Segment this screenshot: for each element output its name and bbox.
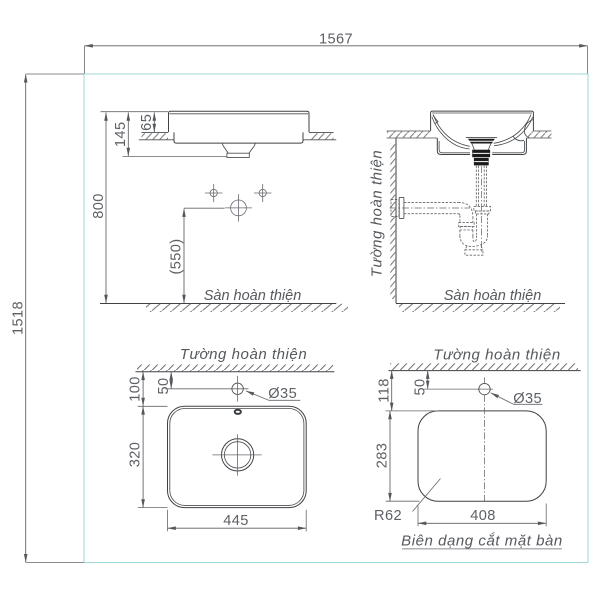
- svg-text:Ø35: Ø35: [268, 386, 297, 402]
- svg-text:408: 408: [470, 508, 496, 524]
- svg-text:118: 118: [376, 378, 392, 402]
- svg-text:100: 100: [128, 376, 144, 402]
- svg-text:Ø35: Ø35: [513, 391, 542, 407]
- svg-text:Tường hoàn thiện: Tường hoàn thiện: [180, 346, 307, 363]
- svg-text:(550): (550): [169, 238, 185, 274]
- svg-text:445: 445: [223, 513, 249, 529]
- svg-text:65: 65: [139, 114, 155, 131]
- svg-text:283: 283: [375, 443, 391, 469]
- svg-text:Sàn hoàn thiện: Sàn hoàn thiện: [444, 288, 542, 304]
- svg-text:50: 50: [412, 378, 428, 395]
- svg-text:800: 800: [91, 193, 107, 219]
- svg-text:145: 145: [113, 122, 129, 148]
- svg-text:R62: R62: [374, 508, 402, 524]
- svg-text:Sàn hoàn thiện: Sàn hoàn thiện: [204, 288, 302, 304]
- svg-text:320: 320: [128, 442, 144, 468]
- svg-text:Tường hoàn thiện: Tường hoàn thiện: [433, 347, 560, 364]
- svg-text:1518: 1518: [11, 301, 27, 335]
- svg-text:1567: 1567: [319, 32, 353, 48]
- svg-text:Tường hoàn thiện: Tường hoàn thiện: [369, 150, 386, 277]
- svg-text:Biên dạng cắt mặt bàn: Biên dạng cắt mặt bàn: [401, 533, 563, 550]
- svg-text:50: 50: [156, 377, 172, 394]
